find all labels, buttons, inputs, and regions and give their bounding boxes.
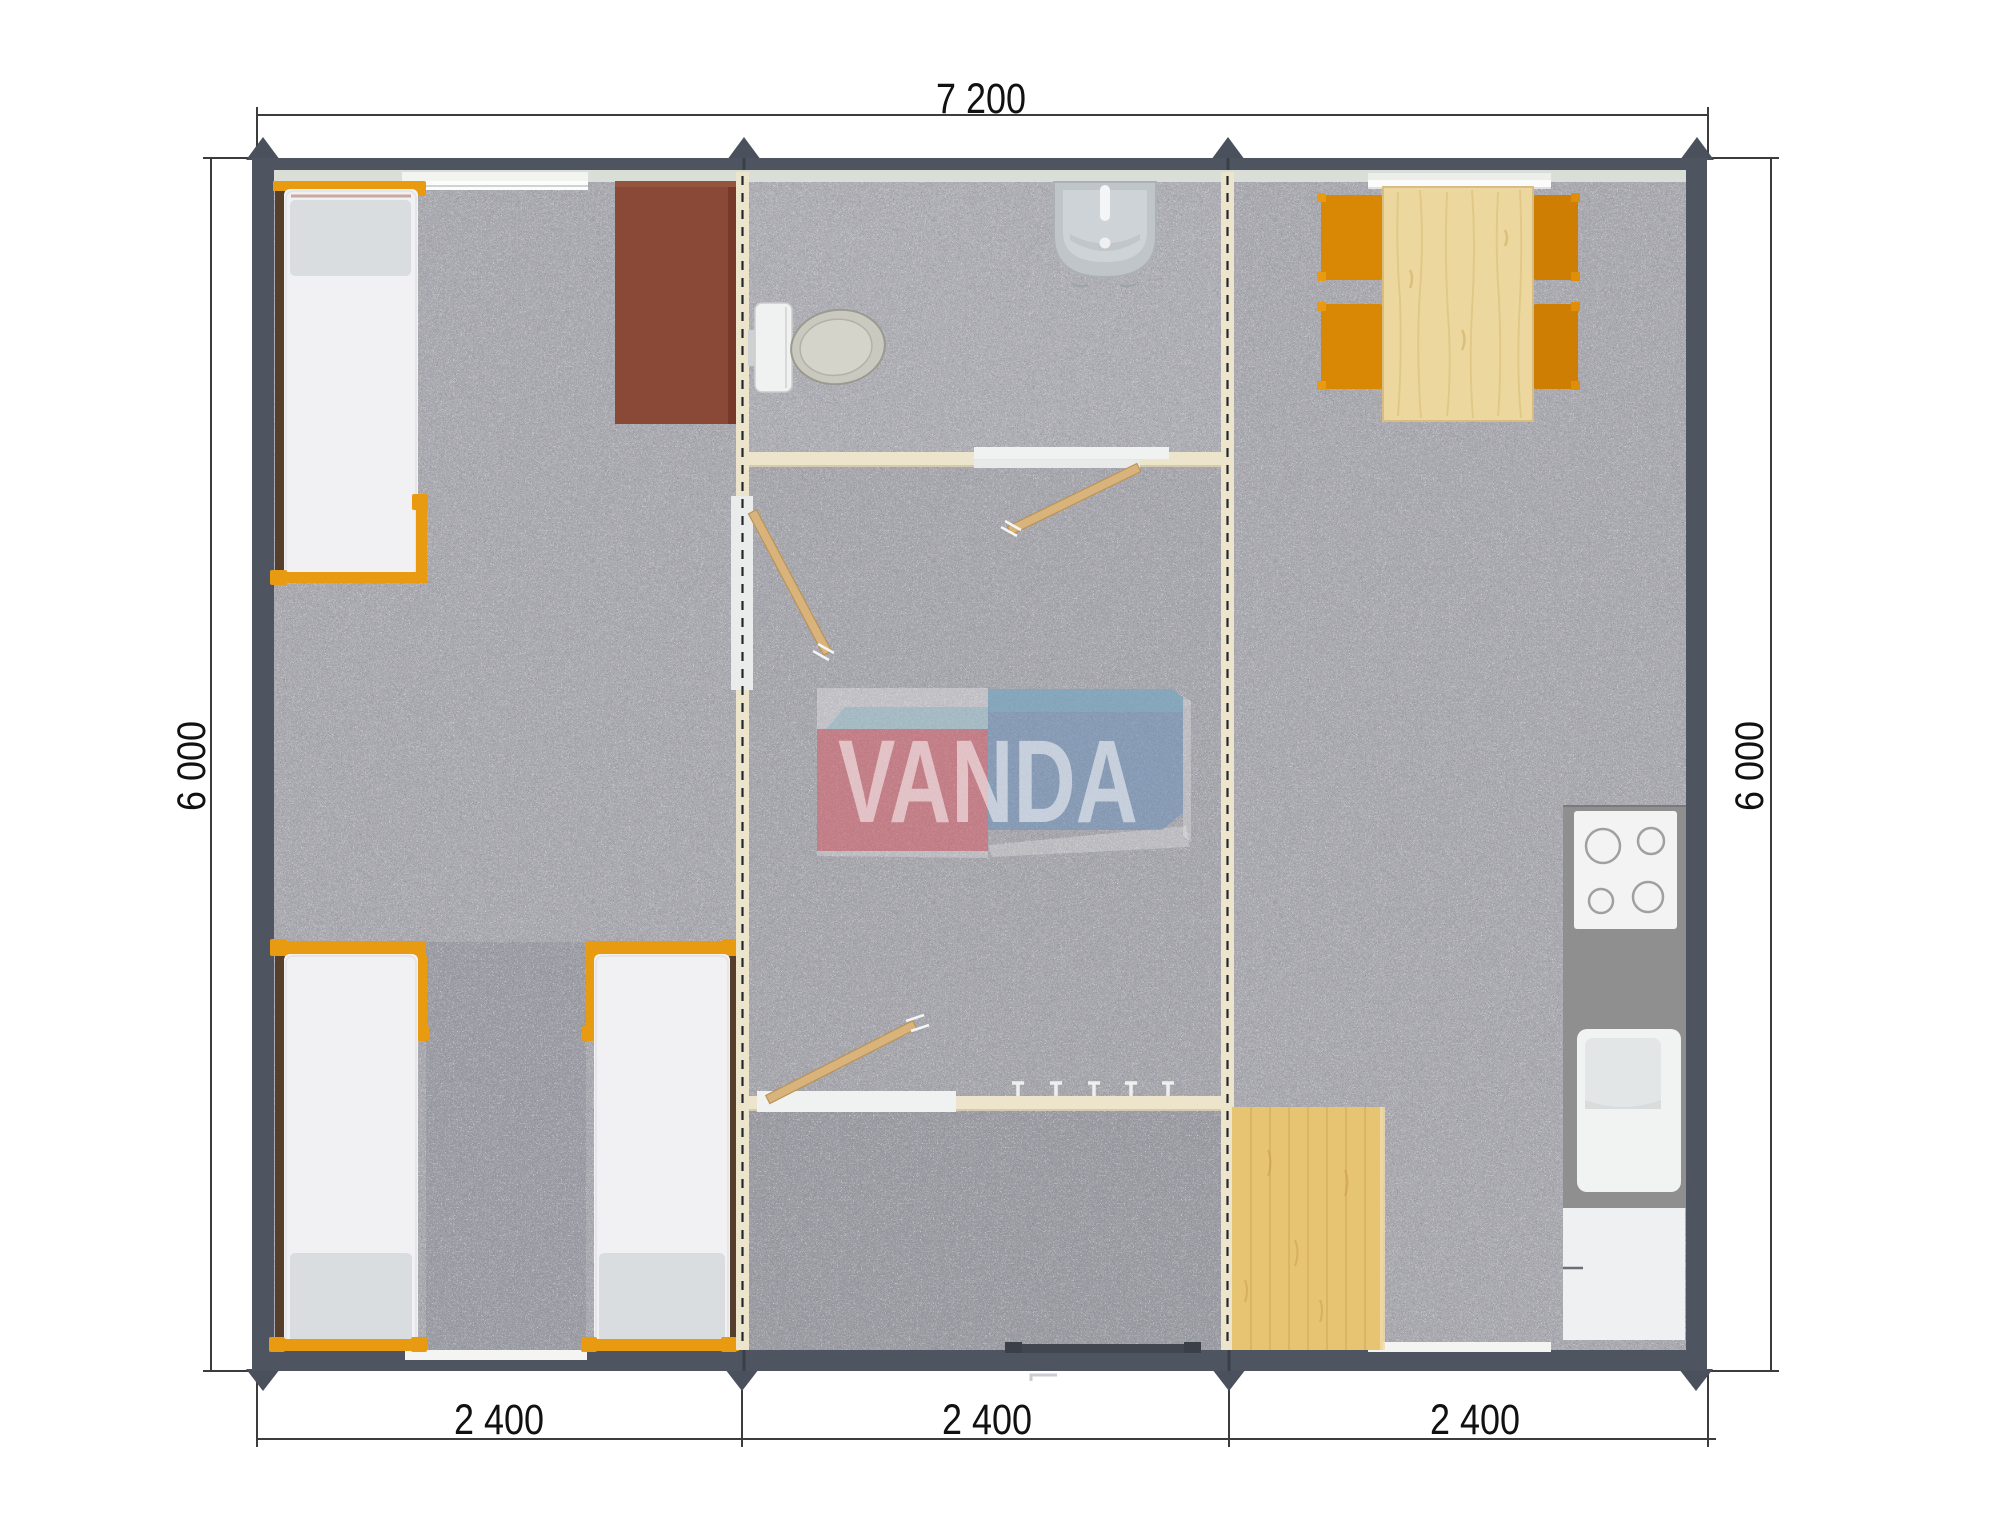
svg-text:2 400: 2 400 — [454, 1396, 544, 1444]
svg-text:VANDA: VANDA — [838, 715, 1138, 848]
svg-text:2 400: 2 400 — [942, 1396, 1032, 1444]
svg-text:2 400: 2 400 — [1430, 1396, 1520, 1444]
svg-text:7 200: 7 200 — [936, 75, 1026, 123]
svg-text:6 000: 6 000 — [170, 721, 214, 811]
svg-text:6 000: 6 000 — [1728, 721, 1772, 811]
